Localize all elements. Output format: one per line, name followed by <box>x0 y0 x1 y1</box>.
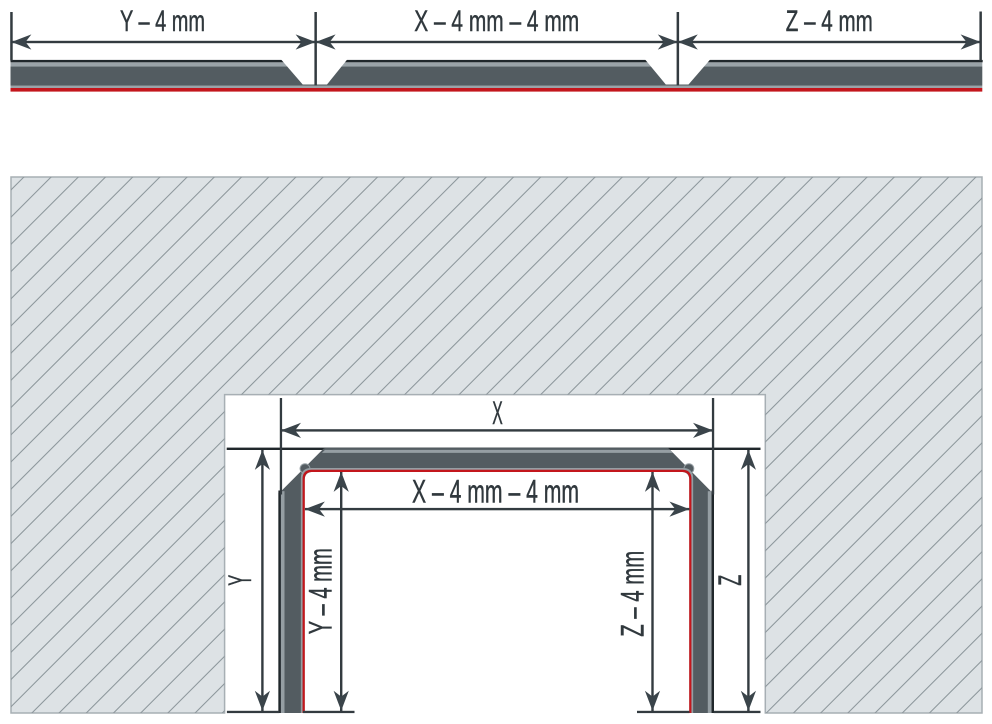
svg-text:Z – 4 mm: Z – 4 mm <box>615 551 651 637</box>
svg-text:Y – 4 mm: Y – 4 mm <box>120 5 205 38</box>
svg-text:Y: Y <box>222 575 258 586</box>
svg-text:Y – 4 mm: Y – 4 mm <box>303 548 339 634</box>
svg-text:Z: Z <box>712 575 748 586</box>
svg-text:X – 4 mm – 4 mm: X – 4 mm – 4 mm <box>412 474 579 510</box>
svg-text:Z – 4 mm: Z – 4 mm <box>786 5 873 38</box>
svg-text:X – 4 mm – 4 mm: X – 4 mm – 4 mm <box>414 5 579 38</box>
svg-text:X: X <box>492 395 503 431</box>
